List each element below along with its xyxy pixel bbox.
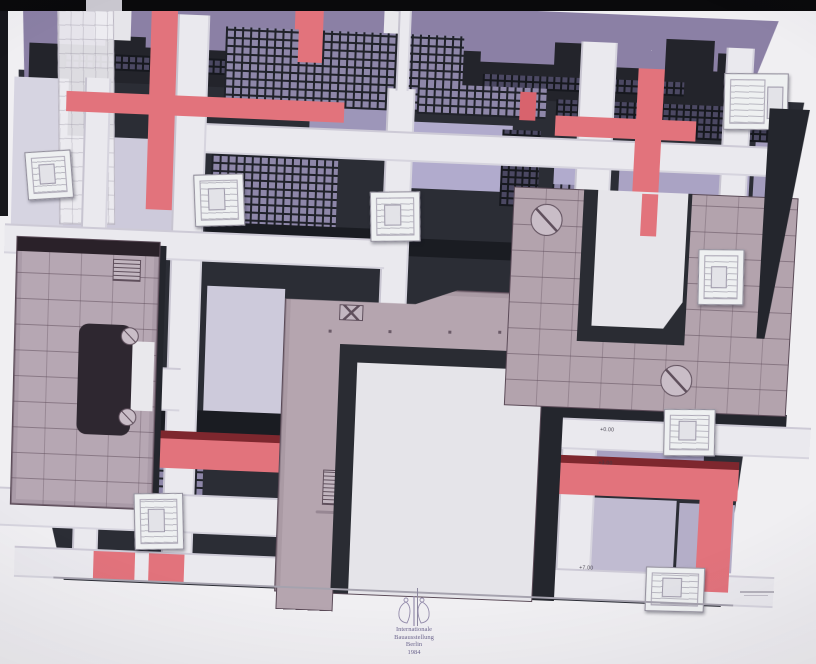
- iba-logo-icon: [392, 596, 436, 626]
- detail-inset: [697, 249, 744, 305]
- detail-inset: [370, 191, 421, 242]
- detail-inset: [24, 149, 74, 200]
- red-path: [640, 194, 658, 237]
- title-line-4: 1984: [364, 649, 464, 657]
- column-dot: [448, 331, 451, 334]
- column-dot: [498, 331, 501, 334]
- inset-box: [208, 188, 226, 211]
- detail-inset: [193, 173, 245, 227]
- inset-box: [38, 164, 56, 185]
- red-path: [519, 92, 536, 121]
- inset-box: [148, 509, 165, 533]
- signature-mark: [740, 591, 774, 593]
- film-bar-top: [0, 0, 816, 11]
- column-dot: [329, 330, 332, 333]
- detail-inset: [663, 409, 716, 457]
- floor-plan-left: [10, 236, 161, 511]
- red-path: [148, 553, 184, 582]
- courtyard-white: [591, 190, 688, 329]
- plan-drawing: +0.00 +3.00 +7.00: [0, 0, 816, 611]
- inset-box: [711, 266, 727, 288]
- inset-box: [678, 421, 696, 441]
- column-dot: [388, 330, 391, 333]
- title-block: Internationale Bauausstellung Berlin 198…: [364, 596, 464, 656]
- stair-run: [112, 259, 141, 282]
- level-mark: +3.00: [598, 460, 612, 466]
- level-mark: +7.00: [579, 565, 593, 571]
- site-plan-photo: +0.00 +3.00 +7.00 Internationale Bauauss…: [0, 0, 816, 664]
- detail-inset: [645, 566, 706, 612]
- film-bar-left: [0, 11, 8, 216]
- inset-box: [384, 204, 401, 225]
- cross-box: [339, 304, 364, 321]
- detail-inset: [134, 493, 185, 550]
- court-gap: [131, 341, 155, 411]
- signature-mark: [744, 595, 768, 596]
- film-bar-gap: [86, 0, 122, 11]
- level-mark: +0.00: [600, 427, 614, 433]
- inset-linework: [729, 79, 765, 124]
- title-line-1: Internationale: [364, 626, 464, 634]
- inset-box: [662, 578, 682, 598]
- title-line-3: Berlin: [364, 641, 464, 649]
- red-path: [93, 551, 135, 580]
- red-path: [298, 9, 324, 63]
- title-line-2: Bauausstellung: [364, 634, 464, 642]
- floor-plan-center: [274, 283, 547, 602]
- band-tower: [665, 39, 715, 74]
